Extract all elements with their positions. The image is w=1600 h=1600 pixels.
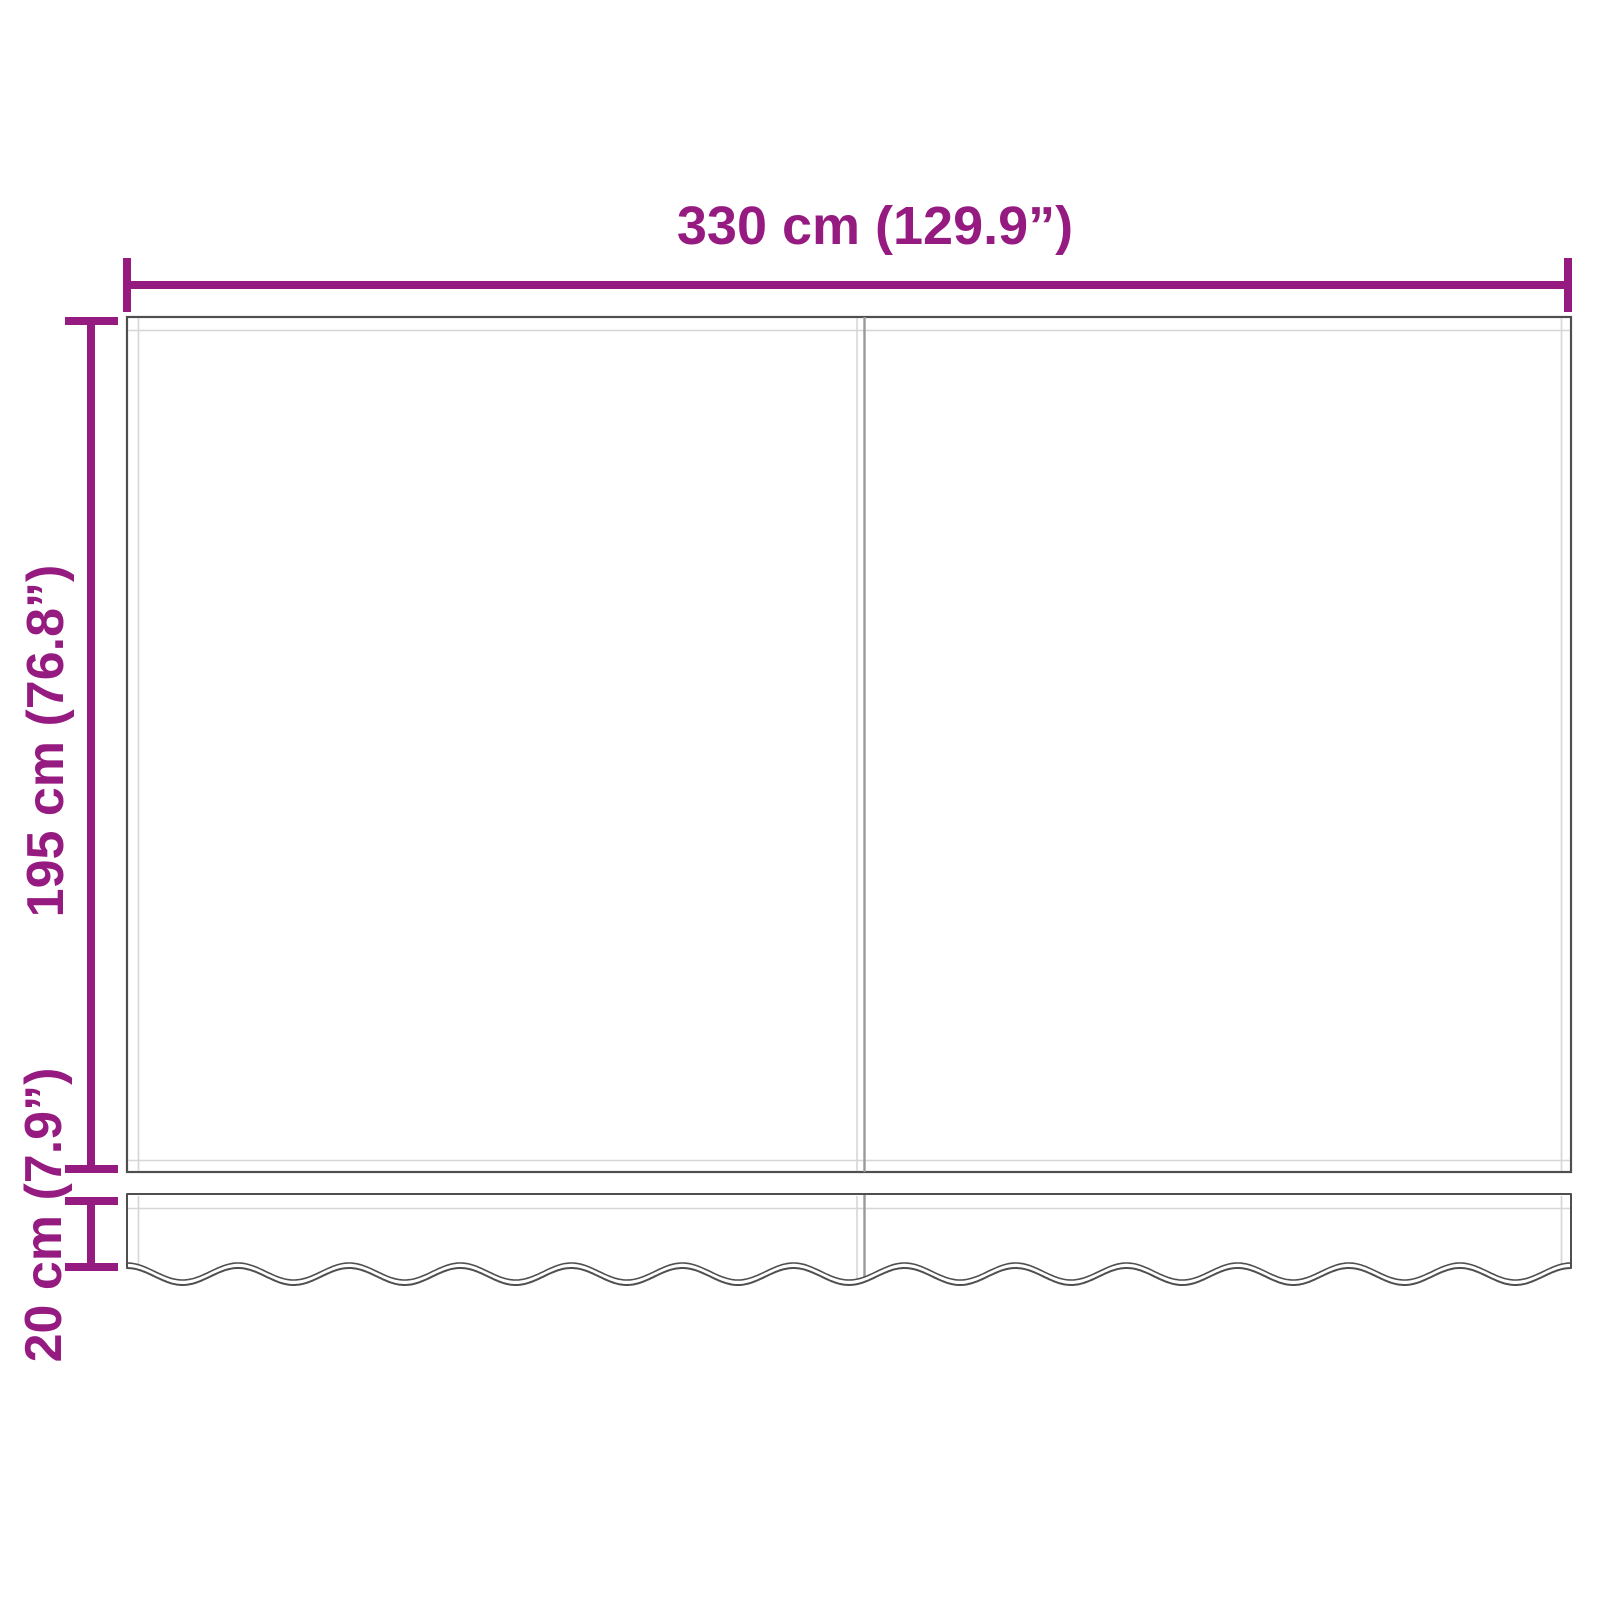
awning-main-panel — [127, 317, 1571, 1172]
valance-panel — [127, 1194, 1571, 1285]
height-dimension-tick-top — [65, 317, 118, 325]
valance-dimension-tick-bottom — [65, 1263, 118, 1271]
width-dimension-tick-right — [1564, 258, 1572, 312]
awning-dimension-diagram: 330 cm (129.9”) 195 cm (76.8”) 20 cm (7.… — [0, 0, 1600, 1600]
valance-dimension-line — [87, 1197, 95, 1271]
valance-dimension-tick-top — [65, 1197, 118, 1205]
width-dimension-label: 330 cm (129.9”) — [475, 196, 1275, 256]
valance-dimension-label: 20 cm (7.9”) — [14, 915, 74, 1515]
width-dimension-tick-left — [123, 258, 131, 312]
width-dimension-line — [127, 281, 1572, 289]
height-dimension-line — [87, 317, 95, 1173]
